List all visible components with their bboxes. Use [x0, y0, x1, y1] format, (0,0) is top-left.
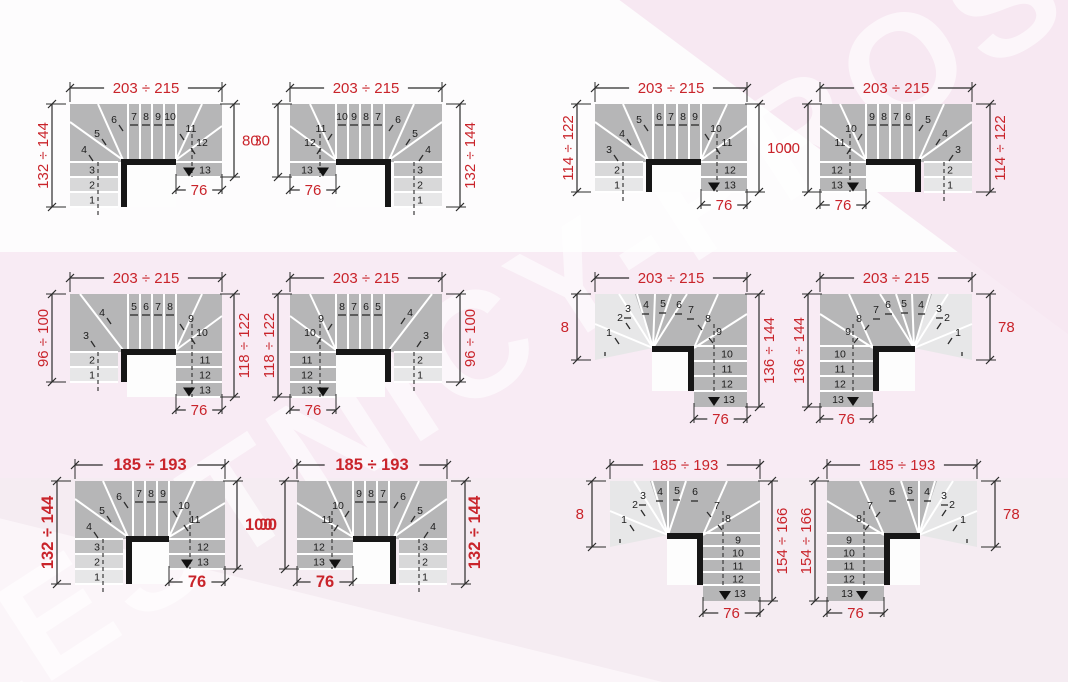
staircase-diagram-sheet: LESTNICY-PROSTO.RU 12345678910111213203 …: [0, 0, 1068, 682]
step-number: 3: [423, 330, 429, 342]
dim-label-left: 132 ÷ 144: [36, 122, 52, 189]
step-number: 10: [164, 111, 176, 123]
step-number: 13: [313, 557, 325, 569]
step-number: 5: [131, 301, 137, 313]
step-number: 12: [313, 542, 325, 554]
dim-label-right: 132 ÷ 144: [466, 495, 484, 569]
step-number: 7: [131, 111, 137, 123]
dim-label-bottom: 76: [712, 411, 729, 428]
step-number: 11: [322, 514, 333, 526]
step-number: 3: [625, 303, 631, 315]
stair-diagram-1: 12345678910111213203 ÷ 21576132 ÷ 14480: [36, 76, 270, 246]
step-number: 13: [723, 394, 735, 406]
step-number: 6: [905, 111, 911, 123]
step-number: 3: [422, 542, 428, 554]
step-number: 1: [947, 180, 953, 192]
stair-corner-stringer: [873, 346, 915, 352]
dim-label-top: 185 ÷ 193: [113, 456, 186, 474]
dim-label-bottom: 76: [316, 573, 334, 591]
step-number: 3: [941, 490, 947, 502]
step-number: 6: [676, 299, 682, 311]
step-number: 2: [949, 499, 955, 511]
step-number: 12: [721, 379, 733, 391]
step-number: 1: [94, 572, 100, 584]
step-number: 1: [417, 370, 423, 382]
step-number: 6: [885, 299, 891, 311]
step-number: 5: [674, 485, 680, 497]
step-number: 3: [417, 165, 423, 177]
step-number: 6: [395, 114, 401, 126]
stair-diagram-3: 12345678910111213203 ÷ 21576114 ÷ 122100: [561, 76, 795, 246]
step-number: 2: [617, 312, 623, 324]
dim-label-left: 96 ÷ 100: [36, 309, 52, 367]
dim-label-bottom: 76: [305, 402, 322, 419]
step-number: 11: [835, 137, 846, 149]
stair-corner-stringer: [121, 159, 127, 207]
step-number: 11: [722, 364, 733, 376]
step-number: 5: [99, 505, 105, 517]
step-number: 4: [430, 521, 436, 533]
stair-corner-stringer: [121, 159, 176, 165]
step-number: 11: [835, 364, 846, 376]
step-number: 4: [924, 486, 930, 498]
stair-diagram-9: 12345678910111213185 ÷ 19376132 ÷ 144100: [41, 453, 275, 623]
stair-corner-stringer: [652, 346, 694, 352]
step-number: 10: [843, 548, 855, 560]
stair-diagram-6: 12345678910111213203 ÷ 21576118 ÷ 12296 …: [256, 266, 490, 436]
step-number: 9: [845, 326, 851, 338]
step-number: 2: [632, 499, 638, 511]
stair-diagram-5: 12345678910111213203 ÷ 2157696 ÷ 100118 …: [36, 266, 270, 436]
dim-label-bottom: 76: [835, 197, 852, 214]
step-number: 2: [417, 180, 423, 192]
stair-corner-stringer: [353, 536, 396, 542]
step-number: 11: [316, 123, 327, 135]
step-number: 7: [893, 111, 899, 123]
dim-label-left: 78: [576, 506, 584, 523]
step-number: 6: [116, 491, 122, 503]
step-number: 4: [657, 486, 663, 498]
step-number: 9: [188, 313, 194, 325]
stair-plan-svg: 12345678910111213203 ÷ 21576132 ÷ 14480: [36, 76, 270, 246]
step-number: 10: [304, 327, 316, 339]
step-number: 9: [155, 111, 161, 123]
step-number: 12: [724, 165, 736, 177]
step-number: 9: [356, 488, 362, 500]
dim-label-left: 114 ÷ 122: [561, 115, 577, 181]
step-number: 10: [721, 349, 733, 361]
step-number: 4: [86, 521, 92, 533]
step-number: 3: [606, 144, 612, 156]
dim-label-top: 203 ÷ 215: [333, 80, 400, 97]
step-number: 4: [918, 299, 924, 311]
step-number: 7: [155, 301, 161, 313]
step-number: 11: [302, 355, 313, 367]
stair-corner-stringer: [336, 349, 391, 355]
stair-diagram-11: 12345678910111213185 ÷ 1937678154 ÷ 166: [576, 453, 810, 623]
stair-plan-svg: 12345678910111213203 ÷ 21576114 ÷ 122100: [561, 76, 795, 246]
stair-diagram-12: 12345678910111213185 ÷ 19376154 ÷ 16678: [791, 453, 1025, 623]
step-number: 12: [301, 370, 313, 382]
stair-corner-stringer: [646, 159, 701, 165]
step-number: 5: [94, 128, 100, 140]
stair-diagram-10: 12345678910111213185 ÷ 19376100132 ÷ 144: [261, 453, 495, 623]
step-number: 9: [692, 111, 698, 123]
step-number: 10: [732, 548, 744, 560]
step-number: 6: [889, 486, 895, 498]
step-number: 3: [94, 542, 100, 554]
dim-label-bottom: 76: [838, 411, 855, 428]
step-number: 1: [614, 180, 620, 192]
step-number: 9: [160, 488, 166, 500]
step-number: 2: [89, 355, 95, 367]
step-number: 2: [947, 165, 953, 177]
step-number: 1: [417, 195, 423, 207]
step-number: 12: [197, 542, 209, 554]
stair-plan-svg: 12345678910111213203 ÷ 2157678136 ÷ 144: [561, 266, 795, 436]
dim-label-top: 185 ÷ 193: [869, 457, 936, 474]
dim-label-right: 78: [998, 319, 1015, 336]
step-number: 7: [375, 111, 381, 123]
step-number: 4: [942, 128, 948, 140]
step-number: 10: [332, 500, 344, 512]
step-number: 4: [619, 128, 625, 140]
dim-label-top: 203 ÷ 215: [863, 80, 930, 97]
stair-diagram-2: 12345678910111213203 ÷ 2157680132 ÷ 144: [256, 76, 490, 246]
step-number: 4: [81, 144, 87, 156]
step-number: 8: [705, 313, 711, 325]
step-number: 13: [199, 385, 211, 397]
stair-plan-svg: 12345678910111213185 ÷ 19376154 ÷ 16678: [791, 453, 1025, 623]
step-number: 9: [716, 326, 722, 338]
dim-label-bottom: 76: [305, 182, 322, 199]
dim-label-right: 132 ÷ 144: [462, 122, 479, 189]
step-number: 6: [143, 301, 149, 313]
step-number: 10: [710, 123, 722, 135]
dim-label-bottom: 76: [723, 605, 740, 622]
step-number: 5: [375, 301, 381, 313]
dim-label-bottom: 76: [847, 605, 864, 622]
step-number: 8: [368, 488, 374, 500]
dim-label-left: 100: [261, 516, 277, 534]
dim-label-right: 136 ÷ 144: [761, 317, 778, 384]
stair-corner-stringer: [336, 159, 391, 165]
stair-corner-stringer: [126, 536, 169, 542]
step-number: 5: [417, 505, 423, 517]
step-number: 10: [845, 123, 857, 135]
step-number: 13: [724, 180, 736, 192]
step-number: 8: [856, 313, 862, 325]
dim-label-right: 118 ÷ 122: [236, 313, 253, 379]
step-number: 3: [83, 330, 89, 342]
step-number: 12: [732, 574, 744, 586]
dim-label-bottom: 76: [716, 197, 733, 214]
step-number: 13: [832, 394, 844, 406]
dim-label-top: 203 ÷ 215: [113, 270, 180, 287]
step-number: 12: [843, 574, 855, 586]
step-number: 8: [725, 513, 731, 525]
step-number: 7: [351, 301, 357, 313]
dim-label-bottom: 76: [188, 573, 206, 591]
step-number: 6: [692, 486, 698, 498]
dim-label-right: 96 ÷ 100: [462, 309, 479, 367]
step-number: 4: [99, 307, 105, 319]
step-number: 9: [846, 535, 852, 547]
step-number: 4: [643, 299, 649, 311]
step-number: 11: [844, 561, 855, 573]
step-number: 11: [733, 561, 744, 573]
step-number: 2: [422, 557, 428, 569]
dim-label-top: 203 ÷ 215: [638, 270, 705, 287]
step-number: 7: [668, 111, 674, 123]
step-number: 2: [417, 355, 423, 367]
step-number: 1: [960, 514, 966, 526]
stair-plan-svg: 12345678910111213203 ÷ 2157680132 ÷ 144: [256, 76, 490, 246]
step-number: 3: [89, 165, 95, 177]
stair-plan-svg: 12345678910111213203 ÷ 21576118 ÷ 12296 …: [256, 266, 490, 436]
step-number: 2: [94, 557, 100, 569]
step-number: 8: [148, 488, 154, 500]
stair-corner-stringer: [385, 159, 391, 207]
stair-diagram-7: 12345678910111213203 ÷ 2157678136 ÷ 144: [561, 266, 795, 436]
step-number: 5: [660, 298, 666, 310]
stair-plan-svg: 12345678910111213203 ÷ 21576100114 ÷ 122: [786, 76, 1020, 246]
step-number: 7: [688, 304, 694, 316]
step-number: 4: [425, 144, 431, 156]
stair-corner-stringer: [884, 533, 920, 539]
stair-corner-stringer: [126, 536, 132, 584]
dim-label-left: 78: [561, 319, 569, 336]
step-number: 11: [190, 514, 201, 526]
step-number: 12: [196, 137, 208, 149]
dim-label-left: 136 ÷ 144: [791, 317, 808, 384]
step-number: 9: [318, 313, 324, 325]
step-number: 5: [636, 114, 642, 126]
dim-label-top: 203 ÷ 215: [333, 270, 400, 287]
step-number: 12: [199, 370, 211, 382]
stair-corner-stringer: [667, 533, 703, 539]
step-number: 10: [336, 111, 348, 123]
dim-label-bottom: 76: [191, 402, 208, 419]
step-number: 8: [881, 111, 887, 123]
step-number: 2: [944, 312, 950, 324]
step-number: 13: [199, 165, 211, 177]
step-number: 7: [714, 500, 720, 512]
step-number: 5: [925, 114, 931, 126]
stair-corner-stringer: [390, 536, 396, 584]
step-number: 10: [196, 327, 208, 339]
stair-plan-svg: 12345678910111213185 ÷ 1937678154 ÷ 166: [576, 453, 810, 623]
step-number: 13: [734, 588, 746, 600]
stair-corner-stringer: [121, 349, 176, 355]
dim-label-top: 203 ÷ 215: [113, 80, 180, 97]
dim-label-right: 154 ÷ 166: [774, 508, 791, 575]
step-number: 5: [901, 298, 907, 310]
step-number: 9: [869, 111, 875, 123]
stair-plan-svg: 12345678910111213203 ÷ 2157696 ÷ 100118 …: [36, 266, 270, 436]
dim-label-left: 100: [786, 140, 800, 157]
stair-plan-svg: 12345678910111213203 ÷ 21576136 ÷ 14478: [786, 266, 1020, 436]
step-number: 13: [197, 557, 209, 569]
dim-label-right: 78: [1003, 506, 1020, 523]
step-number: 6: [363, 301, 369, 313]
step-number: 8: [680, 111, 686, 123]
stair-corner-stringer: [688, 346, 694, 391]
stair-plan-svg: 12345678910111213185 ÷ 19376132 ÷ 144100: [41, 453, 275, 623]
dim-label-top: 185 ÷ 193: [335, 456, 408, 474]
stair-plan-svg: 12345678910111213185 ÷ 19376100132 ÷ 144: [261, 453, 495, 623]
step-number: 3: [640, 490, 646, 502]
step-number: 11: [722, 137, 733, 149]
step-number: 7: [867, 500, 873, 512]
step-number: 12: [304, 137, 316, 149]
step-number: 3: [955, 144, 961, 156]
step-number: 10: [178, 500, 190, 512]
dim-label-bottom: 76: [191, 182, 208, 199]
step-number: 11: [200, 355, 211, 367]
step-number: 12: [834, 379, 846, 391]
step-number: 8: [856, 513, 862, 525]
stair-diagram-8: 12345678910111213203 ÷ 21576136 ÷ 14478: [786, 266, 1020, 436]
step-number: 13: [841, 588, 853, 600]
step-number: 5: [907, 485, 913, 497]
stair-corner-stringer: [697, 533, 703, 585]
step-number: 13: [301, 385, 313, 397]
step-number: 7: [380, 488, 386, 500]
step-number: 8: [339, 301, 345, 313]
dim-label-left: 118 ÷ 122: [261, 313, 278, 379]
step-number: 3: [936, 303, 942, 315]
step-number: 12: [831, 165, 843, 177]
dim-label-top: 203 ÷ 215: [863, 270, 930, 287]
step-number: 1: [422, 572, 428, 584]
step-number: 9: [351, 111, 357, 123]
step-number: 6: [656, 111, 662, 123]
step-number: 2: [614, 165, 620, 177]
step-number: 8: [143, 111, 149, 123]
step-number: 6: [111, 114, 117, 126]
step-number: 5: [412, 128, 418, 140]
dim-label-left: 132 ÷ 144: [41, 495, 57, 569]
step-number: 10: [834, 349, 846, 361]
stair-corner-stringer: [884, 533, 890, 585]
step-number: 1: [89, 370, 95, 382]
dim-label-right: 114 ÷ 122: [992, 115, 1009, 181]
step-number: 13: [301, 165, 313, 177]
step-number: 1: [89, 195, 95, 207]
step-number: 7: [873, 304, 879, 316]
step-number: 1: [955, 327, 961, 339]
step-number: 11: [186, 123, 197, 135]
step-number: 1: [606, 327, 612, 339]
step-number: 8: [167, 301, 173, 313]
dim-label-left: 154 ÷ 166: [798, 508, 815, 575]
step-number: 9: [735, 535, 741, 547]
step-number: 2: [89, 180, 95, 192]
dim-label-left: 80: [256, 133, 270, 150]
step-number: 7: [136, 488, 142, 500]
step-number: 8: [363, 111, 369, 123]
dim-label-top: 185 ÷ 193: [652, 457, 719, 474]
step-number: 6: [400, 491, 406, 503]
step-number: 1: [621, 514, 627, 526]
stair-diagram-4: 12345678910111213203 ÷ 21576100114 ÷ 122: [786, 76, 1020, 246]
stair-corner-stringer: [866, 159, 921, 165]
step-number: 13: [831, 180, 843, 192]
stair-corner-stringer: [873, 346, 879, 391]
step-number: 4: [407, 307, 413, 319]
dim-label-top: 203 ÷ 215: [638, 80, 705, 97]
